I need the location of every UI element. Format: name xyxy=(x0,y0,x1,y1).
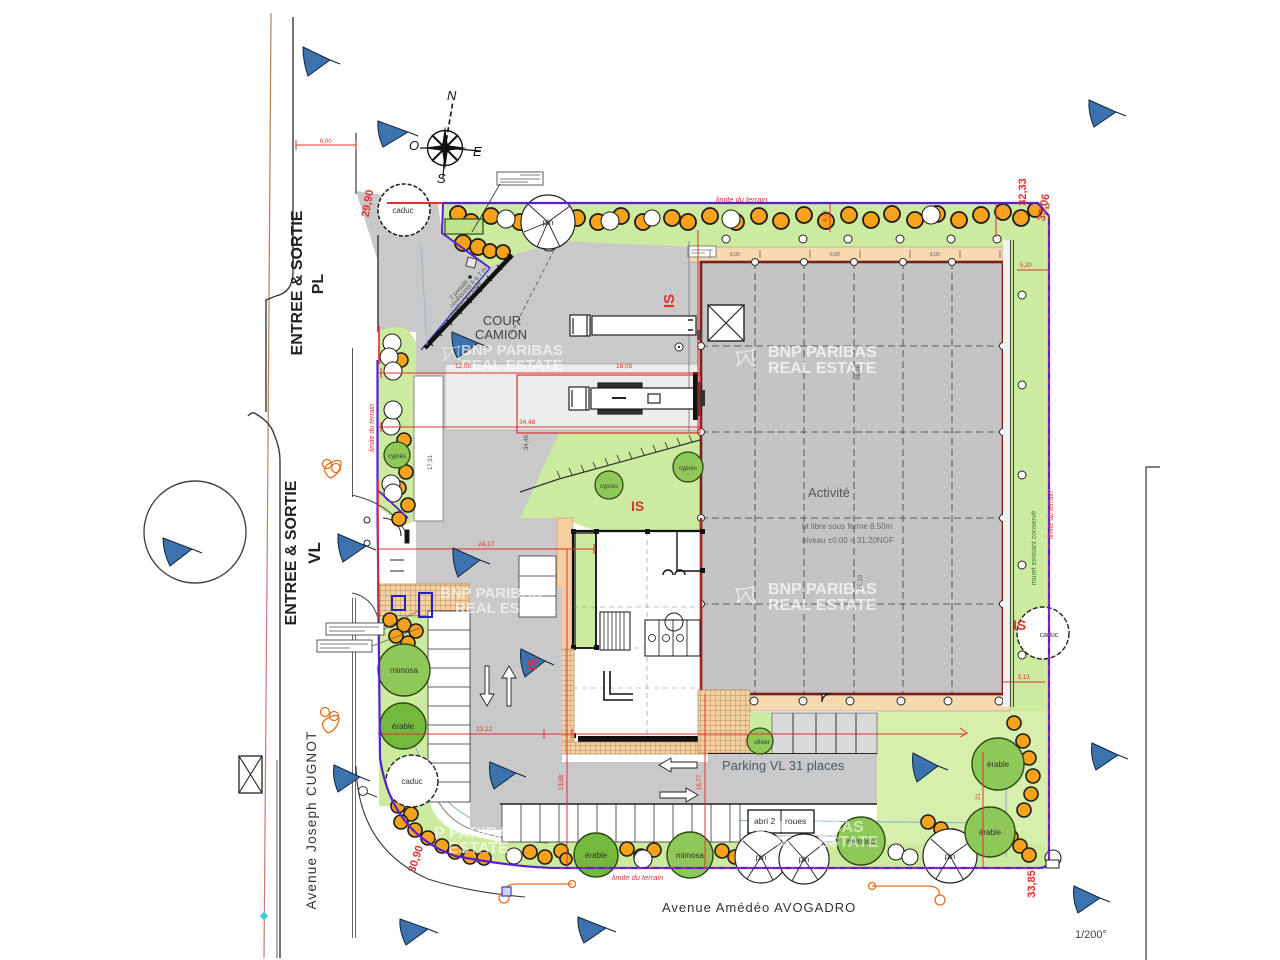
svg-text:PL: PL xyxy=(310,274,327,295)
svg-text:Activité: Activité xyxy=(808,485,850,500)
svg-text:23,12: 23,12 xyxy=(476,726,493,733)
svg-text:muret existant conservé: muret existant conservé xyxy=(1031,511,1038,585)
svg-text:13,88: 13,88 xyxy=(559,774,565,790)
svg-text:Avenue Amédéo AVOGADRO: Avenue Amédéo AVOGADRO xyxy=(662,900,856,915)
svg-text:IS: IS xyxy=(525,658,540,671)
svg-text:érable: érable xyxy=(979,828,1002,837)
svg-text:pin: pin xyxy=(799,855,810,864)
svg-text:96,96: 96,96 xyxy=(856,364,862,380)
svg-text:érable: érable xyxy=(987,760,1010,769)
svg-text:Avenue Joseph CUGNOT: Avenue Joseph CUGNOT xyxy=(304,730,319,909)
svg-text:32,33: 32,33 xyxy=(1017,178,1029,206)
svg-text:cyprès: cyprès xyxy=(600,484,618,490)
svg-text:ESTATE: ESTATE xyxy=(448,840,509,857)
svg-text:16,77: 16,77 xyxy=(697,774,703,790)
svg-text:REAL ESTATE: REAL ESTATE xyxy=(455,600,557,617)
svg-text:ENTREE & SORTIE: ENTREE & SORTIE xyxy=(283,480,300,625)
svg-text:caduc: caduc xyxy=(392,206,413,215)
svg-text:12,00: 12,00 xyxy=(455,363,472,370)
svg-text:N: N xyxy=(447,88,457,103)
svg-text:CAMION: CAMION xyxy=(475,327,527,342)
svg-text:roues: roues xyxy=(785,816,806,826)
svg-text:18,05: 18,05 xyxy=(616,363,633,370)
svg-text:5,20: 5,20 xyxy=(1020,263,1032,269)
svg-text:mimosa: mimosa xyxy=(676,851,705,860)
svg-text:76,10: 76,10 xyxy=(858,574,864,590)
svg-text:6,00: 6,00 xyxy=(730,252,740,258)
svg-text:IS: IS xyxy=(1013,617,1026,633)
svg-text:1/200°: 1/200° xyxy=(1075,929,1107,941)
svg-text:olivier: olivier xyxy=(754,740,770,746)
svg-text:limite du terrain: limite du terrain xyxy=(369,404,376,452)
svg-text:érable: érable xyxy=(392,722,415,731)
svg-text:4,73: 4,73 xyxy=(823,210,829,222)
svg-text:ENTREE & SORTIE: ENTREE & SORTIE xyxy=(289,210,306,355)
svg-text:Parking VL 31 places: Parking VL 31 places xyxy=(722,758,845,773)
svg-text:34,48: 34,48 xyxy=(519,419,536,426)
svg-text:caduc: caduc xyxy=(401,777,422,786)
svg-text:REAL ESTATE: REAL ESTATE xyxy=(461,357,563,374)
svg-text:limite du terrain: limite du terrain xyxy=(716,195,767,204)
svg-text:6,00: 6,00 xyxy=(320,139,332,145)
svg-text:limite du terrain: limite du terrain xyxy=(612,873,663,882)
svg-text:cyprès: cyprès xyxy=(679,466,697,472)
svg-text:5,13: 5,13 xyxy=(1018,675,1030,681)
svg-text:BNP PARIBAS: BNP PARIBAS xyxy=(768,344,877,361)
svg-text:VL: VL xyxy=(305,542,324,564)
svg-text:O: O xyxy=(409,138,419,153)
svg-text:17,91: 17,91 xyxy=(428,454,434,470)
svg-text:REAL ESTATE: REAL ESTATE xyxy=(768,597,877,614)
svg-text:21: 21 xyxy=(976,793,982,800)
svg-text:pin: pin xyxy=(543,218,554,227)
svg-text:limite du terrain: limite du terrain xyxy=(1048,491,1055,539)
svg-text:6,00: 6,00 xyxy=(830,252,840,258)
svg-text:24,17: 24,17 xyxy=(478,541,495,548)
svg-text:abri 2: abri 2 xyxy=(754,816,776,826)
svg-text:pin: pin xyxy=(756,853,767,862)
svg-text:pin: pin xyxy=(945,852,956,861)
svg-text:érable: érable xyxy=(585,851,608,860)
svg-text:mimosa: mimosa xyxy=(390,666,419,675)
svg-text:cyprès: cyprès xyxy=(388,454,406,460)
svg-text:REAL ESTATE: REAL ESTATE xyxy=(770,834,879,851)
svg-text:6,00: 6,00 xyxy=(930,252,940,258)
svg-text:niveau ±0.00 = 31.20NGF: niveau ±0.00 = 31.20NGF xyxy=(802,536,894,545)
svg-text:34,48: 34,48 xyxy=(524,434,530,450)
svg-text:S: S xyxy=(437,171,446,186)
svg-text:E: E xyxy=(473,144,482,159)
svg-text:33,85: 33,85 xyxy=(1026,870,1038,898)
svg-text:ht libre sous ferme 8.50m: ht libre sous ferme 8.50m xyxy=(802,522,893,531)
svg-text:IS: IS xyxy=(661,294,678,308)
svg-text:COUR: COUR xyxy=(483,313,521,328)
svg-text:IS: IS xyxy=(631,498,644,514)
